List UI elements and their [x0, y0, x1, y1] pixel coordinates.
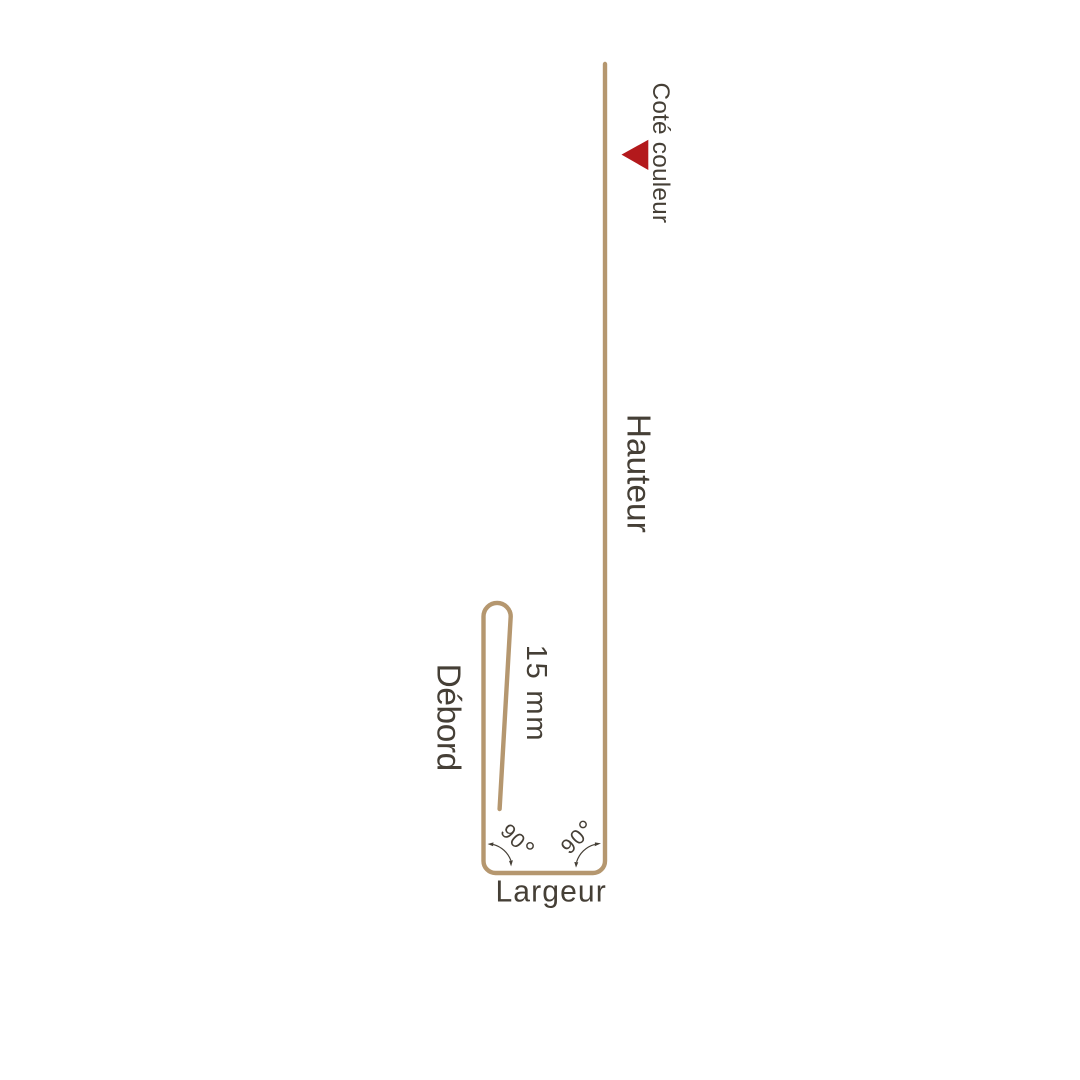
svg-text:15 mm: 15 mm [520, 645, 552, 743]
svg-text:90°: 90° [492, 817, 541, 866]
svg-text:Hauteur: Hauteur [619, 414, 656, 533]
svg-text:90°: 90° [554, 813, 603, 862]
svg-text:Largeur: Largeur [495, 875, 606, 908]
svg-text:Coté couleur: Coté couleur [647, 82, 674, 223]
svg-text:Débord: Débord [429, 664, 466, 771]
